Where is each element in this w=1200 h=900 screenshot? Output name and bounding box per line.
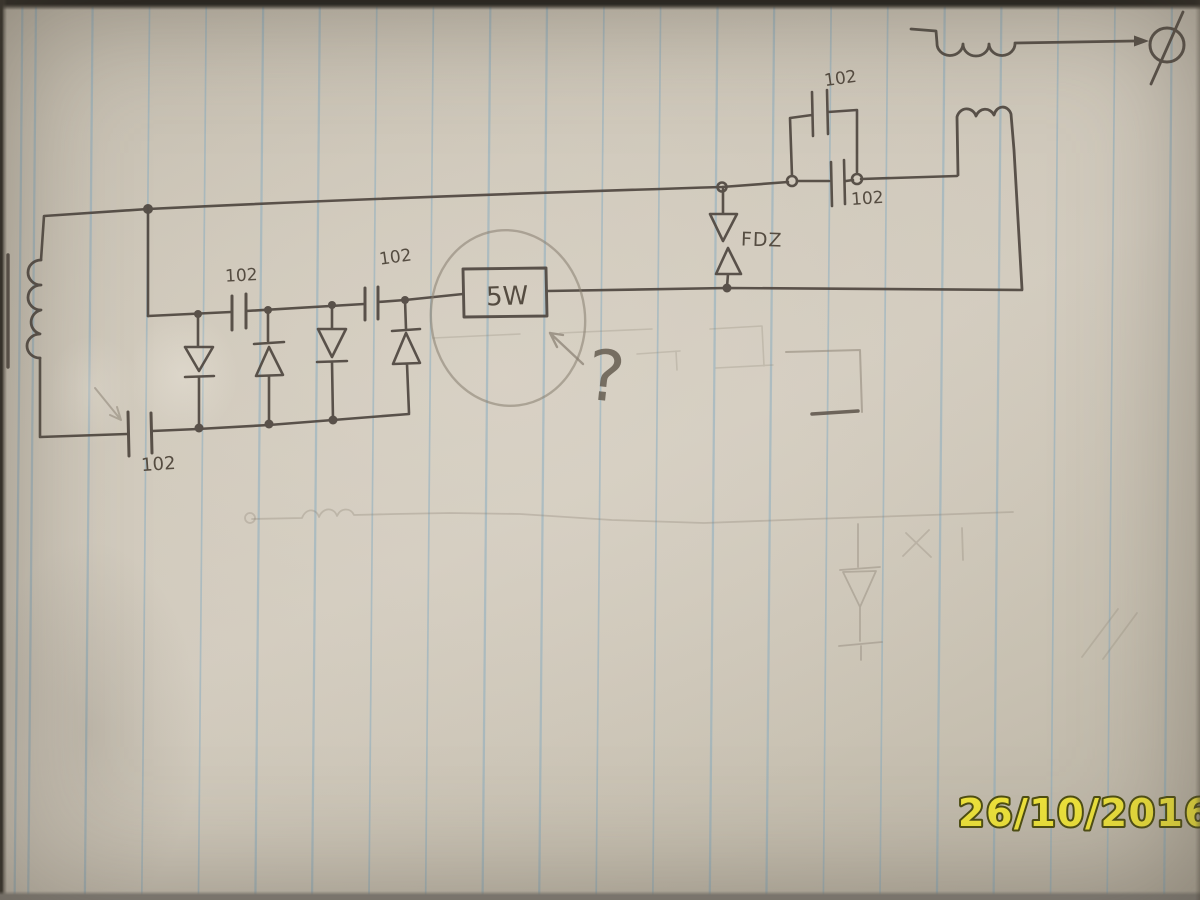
erased-diagonals bbox=[1082, 609, 1137, 659]
transformer-secondary-coil bbox=[957, 107, 1022, 289]
ladder-capacitor-1 bbox=[232, 294, 246, 330]
notebook-photo: 102 102 102 102 102 FDZ 5W ? 26/10/2016 bbox=[0, 0, 1200, 900]
camera-date-stamp: 26/10/2016 bbox=[958, 791, 1200, 835]
erased-sketch-node bbox=[245, 513, 255, 523]
resistor-5w-label: 5W bbox=[486, 281, 529, 312]
diode-3 bbox=[317, 305, 347, 420]
component-labels: 102 102 102 102 102 FDZ 5W ? bbox=[140, 67, 884, 476]
photo-bottom-edge bbox=[0, 891, 1200, 900]
annotation-arrow bbox=[550, 333, 583, 364]
erased-x-mark bbox=[903, 528, 963, 560]
question-mark-annotation: ? bbox=[583, 334, 629, 419]
clipper-diodes-label: FDZ bbox=[741, 228, 783, 251]
left-loop-wire-lower bbox=[40, 358, 127, 437]
diode-2 bbox=[254, 310, 284, 424]
top-rail-wire bbox=[148, 182, 788, 209]
diode-1 bbox=[185, 314, 214, 428]
photo-right-edge bbox=[1195, 0, 1200, 900]
input-capacitor-label: 102 bbox=[140, 453, 176, 476]
dark-pencil-stroke bbox=[812, 411, 858, 414]
mid-rail-right bbox=[547, 288, 1022, 291]
erased-diode-sketch bbox=[839, 524, 882, 660]
input-capacitor bbox=[128, 412, 152, 456]
ladder-bottom-rail bbox=[198, 414, 409, 429]
photo-left-edge bbox=[0, 0, 7, 900]
hv-capacitor-inline bbox=[797, 160, 853, 206]
hv-capacitor-loop bbox=[790, 90, 857, 176]
ladder-capacitor-1-label: 102 bbox=[225, 265, 258, 287]
highlight-ellipse bbox=[421, 221, 595, 414]
input-coil bbox=[27, 260, 41, 358]
fdz-diode-pair bbox=[710, 189, 741, 287]
faint-l-shape bbox=[786, 350, 862, 412]
diode-4 bbox=[392, 300, 420, 413]
circuit-sketch: 102 102 102 102 102 FDZ 5W ? 26/10/2016 bbox=[0, 0, 1200, 900]
pencil-arrow-to-capacitor bbox=[95, 388, 121, 420]
left-loop-wire bbox=[41, 209, 148, 260]
transformer-primary-coil bbox=[911, 29, 1134, 56]
phi-slash bbox=[1151, 12, 1183, 84]
hv-capacitor-top-label: 102 bbox=[823, 67, 858, 91]
photo-top-edge bbox=[0, 0, 1200, 10]
bottom-wire bbox=[152, 429, 198, 431]
hv-capacitor-bottom-label: 102 bbox=[850, 188, 884, 210]
node-circles bbox=[718, 174, 863, 192]
erased-sketch-line bbox=[252, 509, 1013, 523]
output-arrowhead bbox=[1134, 36, 1149, 47]
ladder-capacitor-2-label: 102 bbox=[378, 245, 413, 269]
pencil-annotations bbox=[95, 221, 1137, 660]
wire-to-transformer bbox=[861, 176, 957, 179]
ladder-capacitor-2 bbox=[365, 287, 378, 320]
